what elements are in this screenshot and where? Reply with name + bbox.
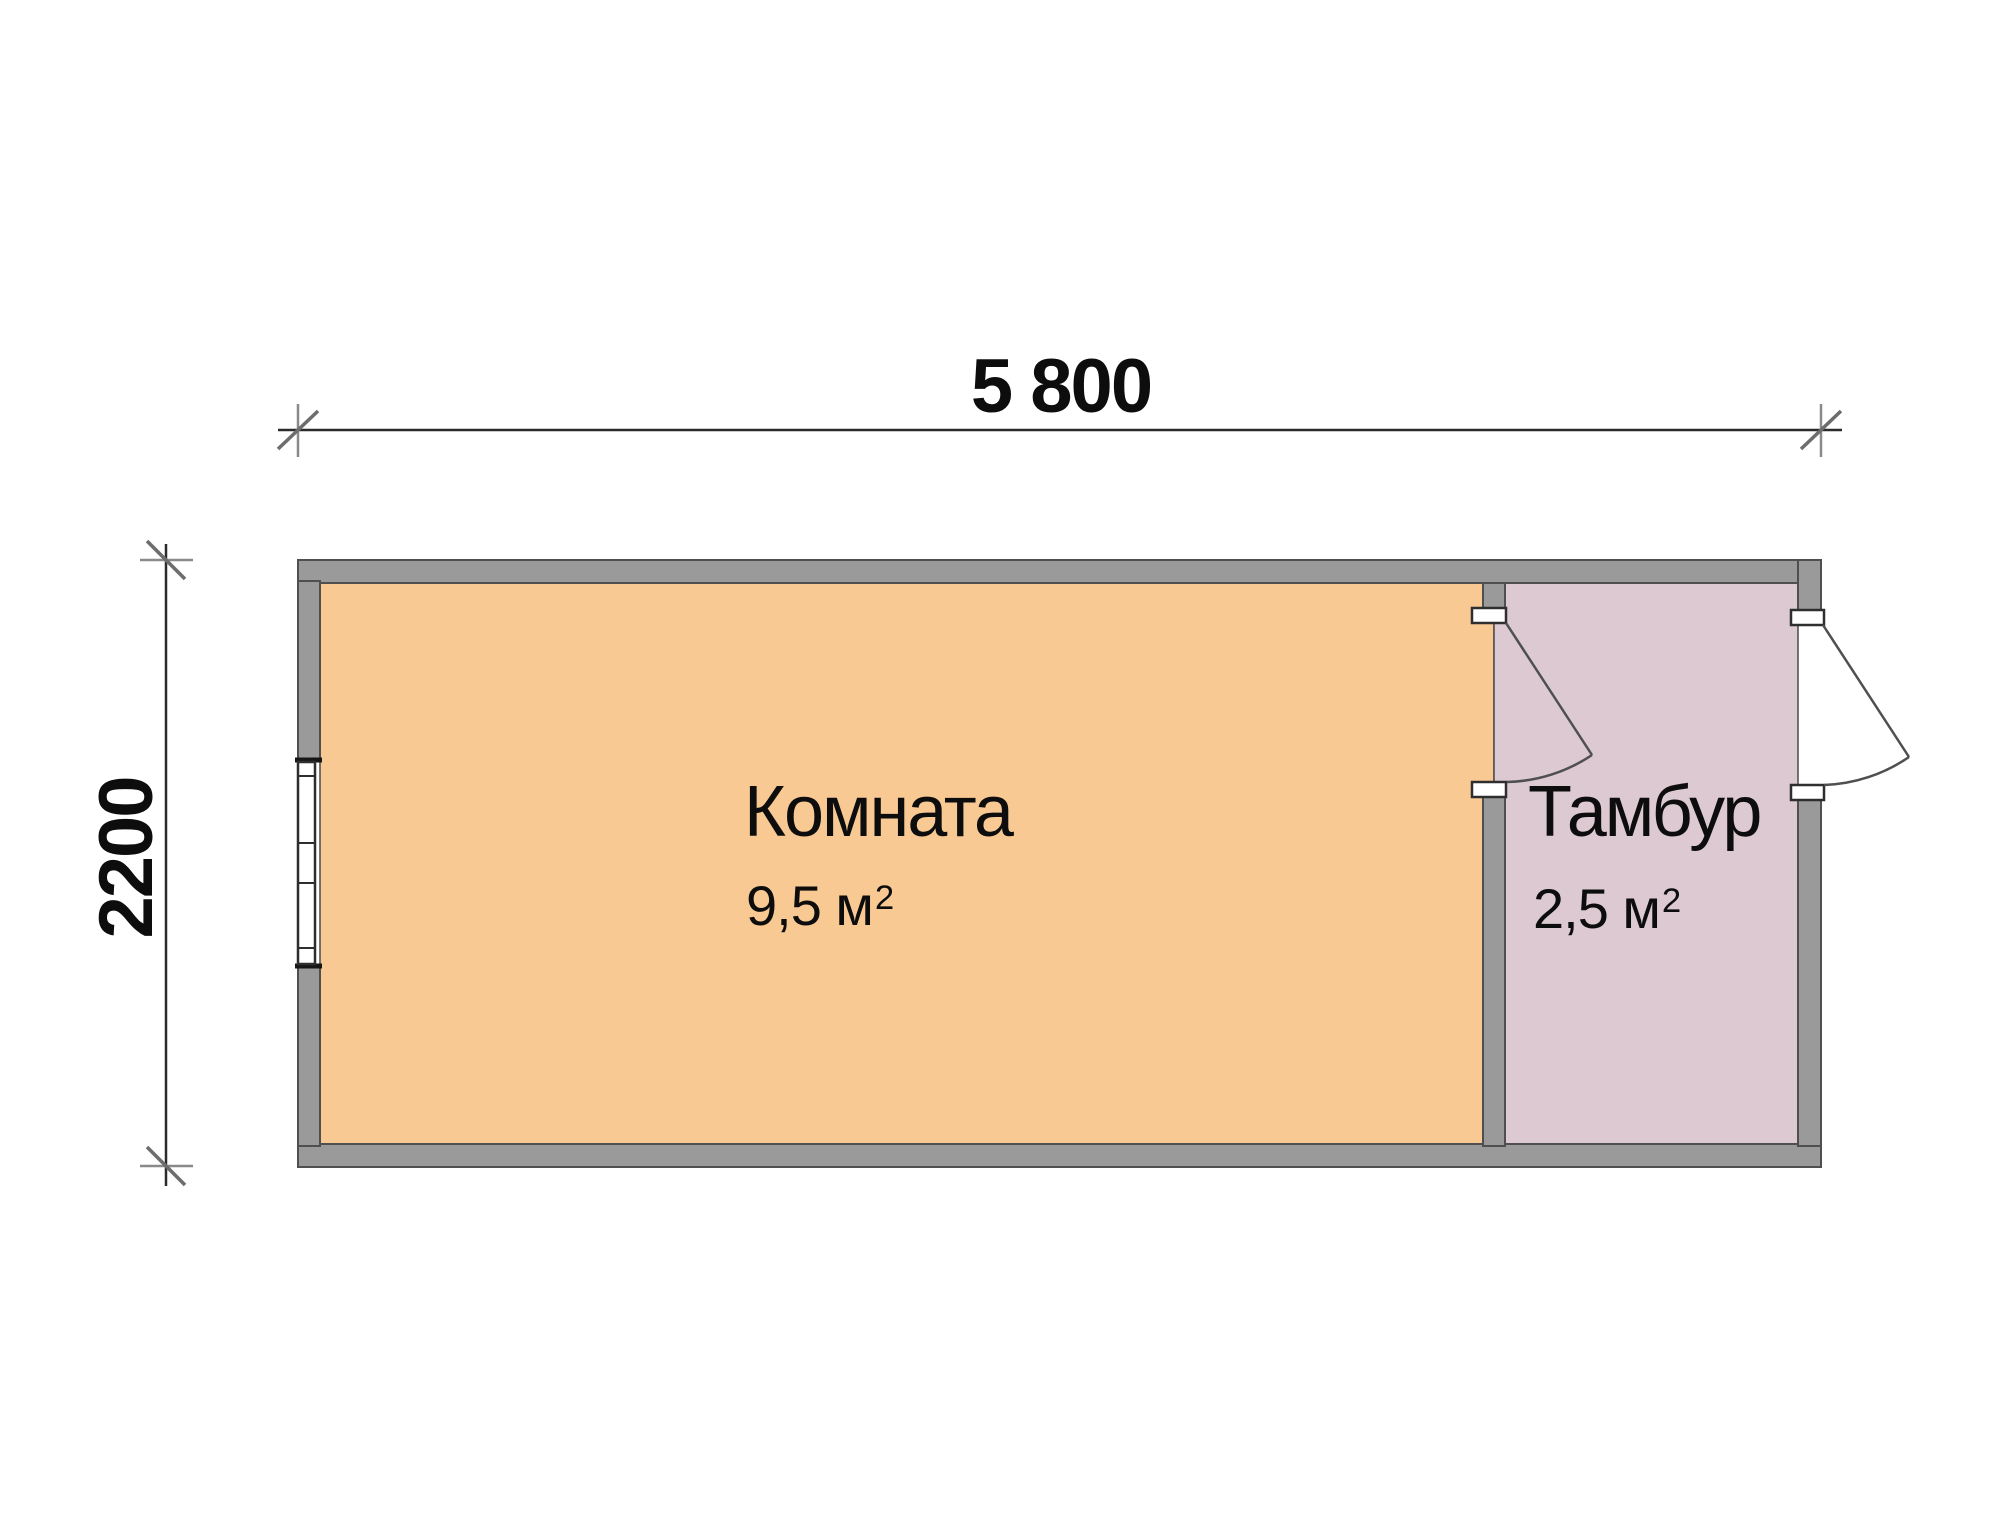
room-floors: [320, 583, 1798, 1144]
wall-left-upper: [298, 581, 320, 760]
wall-left-lower: [298, 966, 320, 1146]
room-tambur-area: 2,5 м2: [1533, 881, 1680, 937]
partition-wall-stub: [1483, 583, 1505, 609]
wall-top: [298, 560, 1821, 583]
room-tambur-area-value: 2,5 м: [1533, 877, 1660, 940]
exterior-door: [1791, 610, 1909, 800]
wall-right-upper: [1798, 560, 1821, 612]
room-komnata-area: 9,5 м2: [746, 878, 893, 934]
floor-plan-drawing: [0, 0, 2000, 1539]
window-frame: [298, 762, 315, 964]
interior-door-jamb-bottom: [1472, 782, 1506, 797]
exterior-door-jamb-top: [1791, 610, 1824, 625]
wall-bottom: [298, 1144, 1821, 1167]
room-tambur-label: Тамбур: [1528, 776, 1760, 848]
floor-plan-canvas: 5 800 2200 Комната 9,5 м2 Тамбур 2,5 м2: [0, 0, 2000, 1539]
room-tambur-floor: [1494, 583, 1798, 1144]
exterior-door-leaf: [1823, 625, 1909, 757]
partition-wall-lower: [1483, 796, 1505, 1146]
room-komnata-label: Комната: [744, 776, 1012, 848]
room-komnata-area-exponent: 2: [875, 879, 893, 917]
exterior-door-jamb-bottom: [1791, 785, 1824, 800]
room-komnata-floor: [320, 583, 1494, 1144]
interior-door-jamb-top: [1472, 608, 1506, 623]
wall-right-lower: [1798, 799, 1821, 1146]
room-komnata-area-value: 9,5 м: [746, 874, 873, 937]
dimension-height-label: 2200: [89, 777, 165, 938]
room-tambur-area-exponent: 2: [1662, 882, 1680, 920]
window-symbol: [295, 760, 322, 966]
dimension-width-label: 5 800: [971, 349, 1151, 425]
exterior-door-swing-arc: [1824, 757, 1909, 785]
